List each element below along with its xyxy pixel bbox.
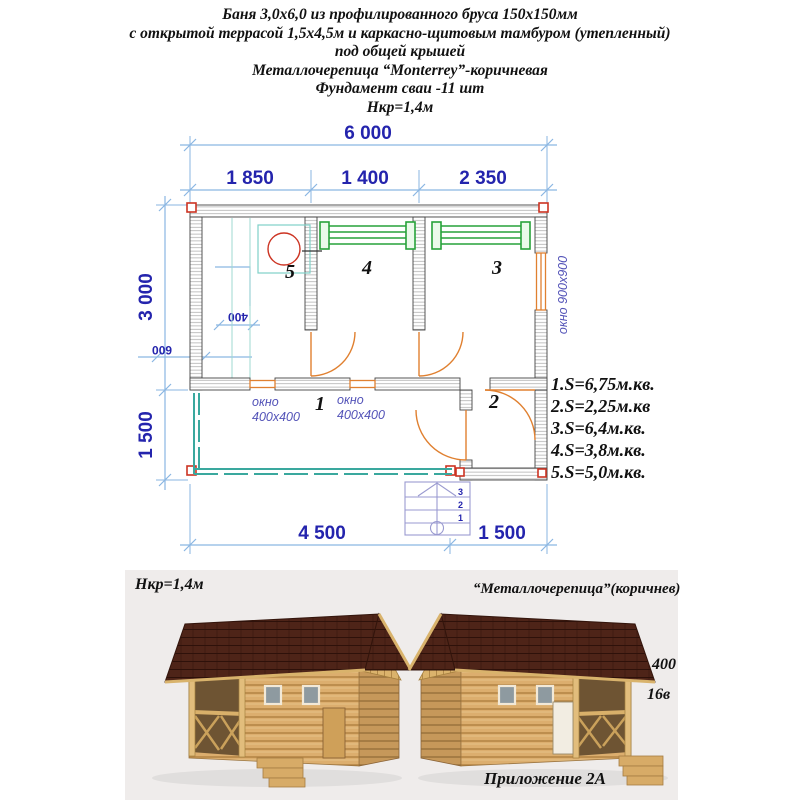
walls xyxy=(190,205,547,480)
title-line-4: Металлочерепица “Monterrey”-коричневая xyxy=(0,62,800,81)
house-render-right xyxy=(409,614,668,787)
window1-label-word: окно xyxy=(252,395,279,409)
dim-bottom-1500: 1 500 xyxy=(478,523,526,544)
window-terrace-1 xyxy=(250,381,275,388)
render-left-caption: Нкр=1,4м xyxy=(135,576,204,594)
dim-total-width: 6 000 xyxy=(344,123,392,144)
tambour-wall-right xyxy=(535,390,547,480)
room-label-4: 4 xyxy=(361,257,372,279)
dim-stove-600: 600 xyxy=(152,343,172,357)
stair-step-2: 2 xyxy=(458,500,463,510)
dim-seg-2350: 2 350 xyxy=(459,168,507,189)
floor-plan-drawing: 6 000 1 850 1 400 2 350 3 000 1 500 4 50… xyxy=(130,110,690,570)
title-block: Баня 3,0х6,0 из профилированного бруса 1… xyxy=(0,6,800,117)
house-render-left xyxy=(152,614,411,787)
house-left-window-1 xyxy=(265,686,281,704)
wall-middle-b xyxy=(275,378,350,390)
projection-lines xyxy=(232,218,250,388)
dim-left-3000: 3 000 xyxy=(136,273,157,321)
house-right-door xyxy=(553,702,573,754)
tambour-wall-bottom xyxy=(460,468,547,480)
title-line-2: с открытой террасой 1,5х4,5м и каркасно-… xyxy=(0,25,800,44)
house-left-side-wall xyxy=(359,668,399,766)
wall-middle-c xyxy=(375,378,460,390)
window2-label-size: 400х400 xyxy=(337,408,385,422)
dim-bottom-4500: 4 500 xyxy=(298,523,346,544)
area-room-2: 2.S=2,25м.кв xyxy=(550,396,650,416)
door-room3 xyxy=(419,332,463,376)
area-room-1: 1.S=6,75м.кв. xyxy=(551,374,655,394)
title-line-1: Баня 3,0х6,0 из профилированного бруса 1… xyxy=(0,6,800,25)
dim-left-1500: 1 500 xyxy=(136,411,157,459)
appendix-label: Приложение 2А xyxy=(425,769,665,789)
area-room-3: 3.S=6,4м.кв. xyxy=(550,418,646,438)
wall-middle-d xyxy=(490,378,547,390)
house-renders xyxy=(125,570,678,800)
window2-label-word: окно xyxy=(337,393,364,407)
stove-circle xyxy=(268,233,300,265)
house-left-window-2 xyxy=(303,686,319,704)
house-right-window-1 xyxy=(499,686,515,704)
room-label-5: 5 xyxy=(285,261,295,283)
house-right-window-2 xyxy=(537,686,553,704)
annotation-400: 400 xyxy=(652,656,676,674)
render-right-caption: “Металлочерепица”(коричнев) xyxy=(473,581,680,598)
dim-seg-1850: 1 850 xyxy=(226,168,274,189)
room-label-3: 3 xyxy=(491,257,502,279)
renders-band: Нкр=1,4м “Металлочерепица”(коричнев) 400… xyxy=(125,570,678,800)
house-left-door xyxy=(323,708,345,758)
window-terrace-2 xyxy=(350,381,375,388)
wall-middle-a xyxy=(190,378,250,390)
wall-right-upper xyxy=(535,217,547,253)
title-line-5: Фундамент сваи -11 шт xyxy=(0,80,800,99)
area-room-4: 4.S=3,8м.кв. xyxy=(550,440,646,460)
door-tambour-terrace xyxy=(416,410,466,460)
window1-label-size: 400х400 xyxy=(252,410,300,424)
dim-stove-400: 400 xyxy=(228,310,248,324)
dim-seg-1400: 1 400 xyxy=(341,168,389,189)
area-room-5: 5.S=5,0м.кв. xyxy=(551,462,646,482)
room-label-1: 1 xyxy=(315,393,325,415)
window-right-label: окно 900х900 xyxy=(556,256,570,334)
tambour-wall-stub-top xyxy=(460,390,472,410)
wall-top xyxy=(190,205,547,217)
title-line-3: под общей крышей xyxy=(0,43,800,62)
floor-plan: 6 000 1 850 1 400 2 350 3 000 1 500 4 50… xyxy=(130,110,690,570)
house-right-side-wall xyxy=(421,668,461,766)
page: Баня 3,0х6,0 из профилированного бруса 1… xyxy=(0,0,800,800)
annotation-16v: 16в xyxy=(647,686,670,704)
extension-lines xyxy=(156,136,547,554)
wall-left xyxy=(190,217,202,390)
stair-step-3: 3 xyxy=(458,487,463,497)
door-room4 xyxy=(311,332,355,376)
areas-list: 1.S=6,75м.кв. 2.S=2,25м.кв 3.S=6,4м.кв. … xyxy=(550,374,655,482)
room-label-2: 2 xyxy=(488,391,499,413)
stair-step-1: 1 xyxy=(458,513,463,523)
